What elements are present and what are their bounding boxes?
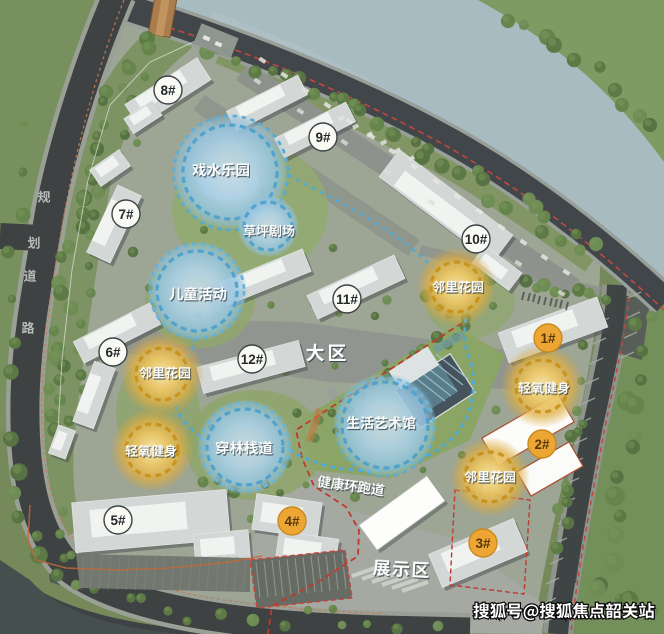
svg-text:3#: 3#	[475, 536, 491, 551]
svg-text:2#: 2#	[534, 437, 550, 452]
svg-text:5#: 5#	[110, 513, 126, 528]
svg-text:6#: 6#	[105, 345, 121, 360]
svg-text:7#: 7#	[118, 207, 134, 222]
svg-text:10#: 10#	[465, 232, 488, 247]
svg-text:1#: 1#	[540, 331, 556, 346]
svg-text:8#: 8#	[160, 83, 176, 98]
svg-text:11#: 11#	[336, 292, 358, 307]
svg-text:9#: 9#	[315, 130, 331, 145]
svg-text:12#: 12#	[241, 352, 264, 367]
svg-text:4#: 4#	[284, 514, 300, 529]
